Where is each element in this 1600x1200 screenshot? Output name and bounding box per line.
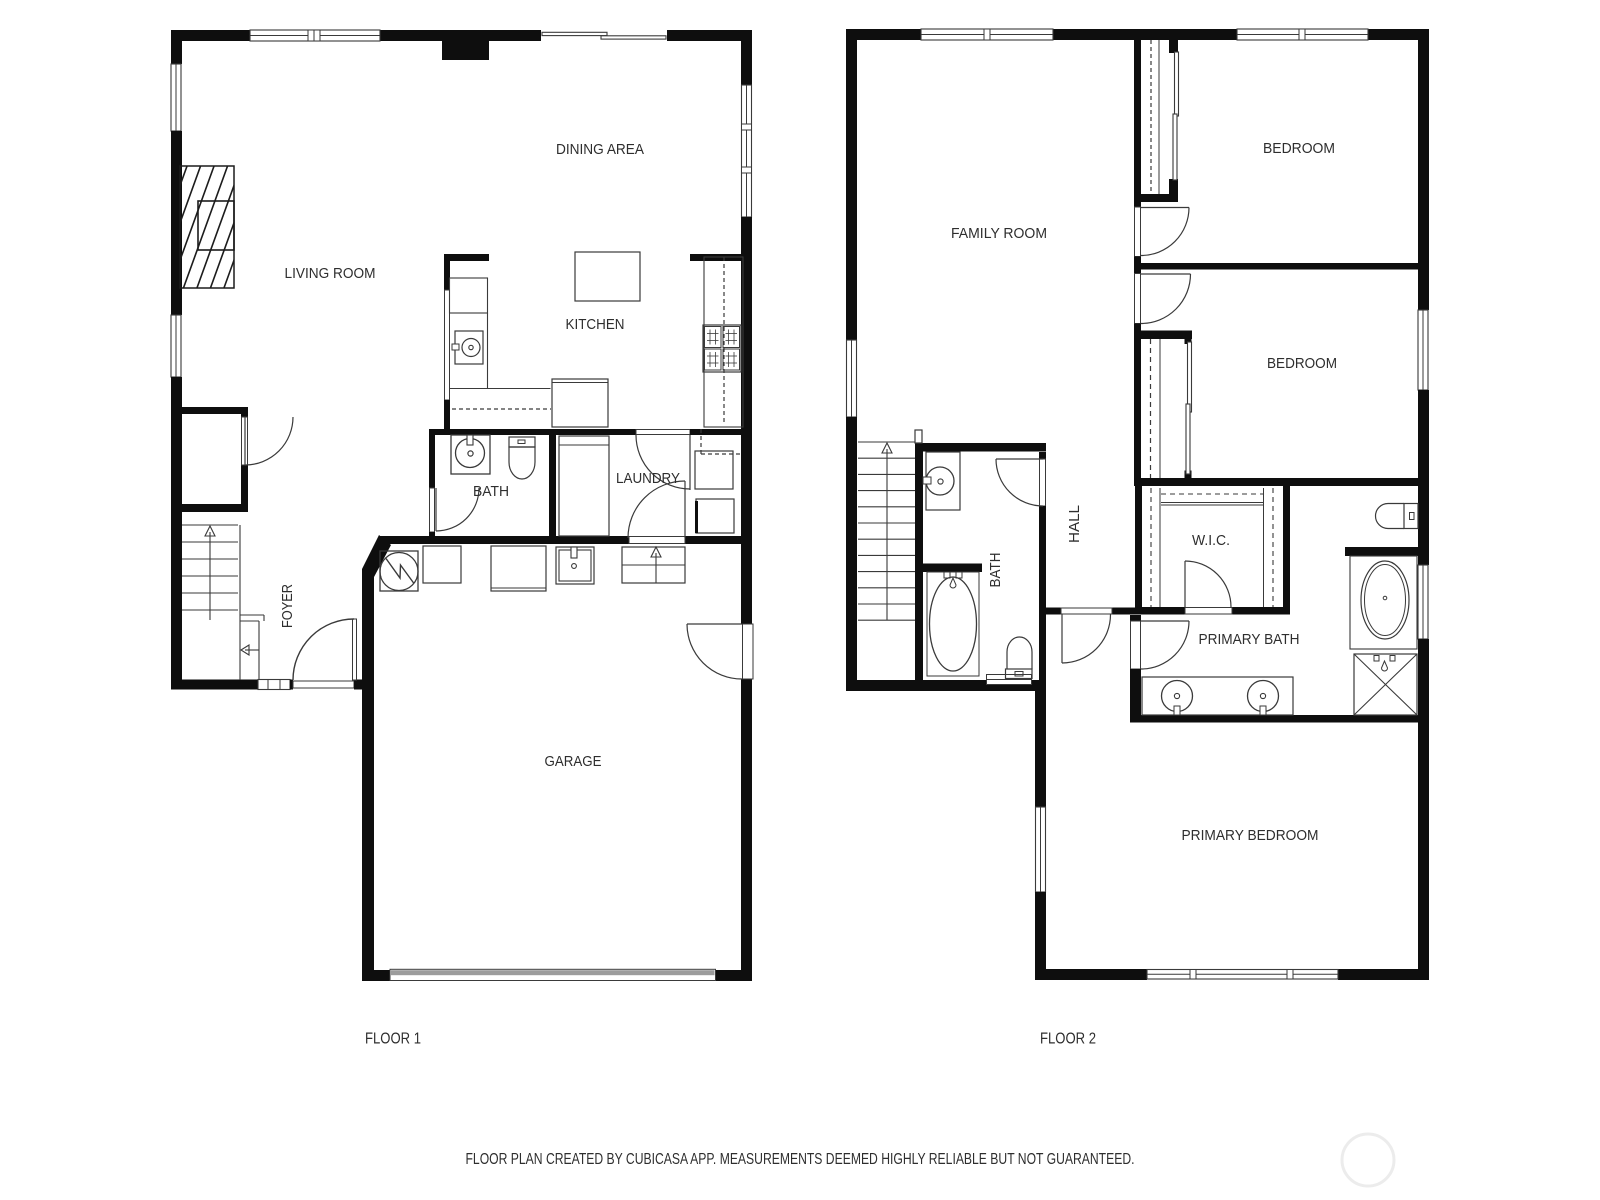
svg-text:LAUNDRY: LAUNDRY bbox=[616, 470, 680, 487]
svg-text:FLOOR 1: FLOOR 1 bbox=[365, 1031, 421, 1048]
svg-text:BEDROOM: BEDROOM bbox=[1263, 140, 1335, 157]
svg-text:PRIMARY BEDROOM: PRIMARY BEDROOM bbox=[1182, 827, 1319, 844]
svg-text:HALL: HALL bbox=[1066, 505, 1083, 543]
svg-text:BATH: BATH bbox=[987, 553, 1004, 588]
svg-text:LIVING ROOM: LIVING ROOM bbox=[285, 265, 376, 282]
svg-text:FLOOR 2: FLOOR 2 bbox=[1040, 1031, 1096, 1048]
svg-text:W.I.C.: W.I.C. bbox=[1192, 532, 1230, 549]
svg-text:FOYER: FOYER bbox=[279, 584, 296, 628]
svg-text:FAMILY ROOM: FAMILY ROOM bbox=[951, 225, 1047, 242]
svg-text:FLOOR PLAN CREATED BY CUBICASA: FLOOR PLAN CREATED BY CUBICASA APP. MEAS… bbox=[466, 1151, 1135, 1168]
svg-text:DINING AREA: DINING AREA bbox=[556, 141, 644, 158]
svg-text:PRIMARY BATH: PRIMARY BATH bbox=[1199, 631, 1300, 648]
svg-text:KITCHEN: KITCHEN bbox=[566, 316, 625, 333]
svg-text:BEDROOM: BEDROOM bbox=[1267, 355, 1337, 372]
svg-text:BATH: BATH bbox=[473, 483, 509, 500]
svg-text:GARAGE: GARAGE bbox=[545, 753, 602, 770]
